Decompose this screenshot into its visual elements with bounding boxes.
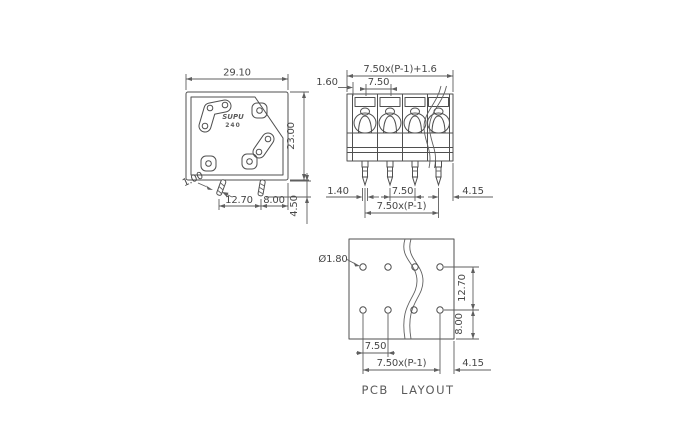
front-view: 7.50x(P-1)+1.6 7.50 1.60 1.40 — [316, 64, 493, 218]
dim-label-pitch-top: 7.50 — [368, 77, 389, 88]
dim-label-pin-width: 1.40 — [327, 186, 348, 197]
dim-label-body-width: 29.10 — [223, 68, 251, 79]
dim-label-pin-span: 7.50x(P-1) — [377, 201, 427, 212]
side-view-body: SUPU 240 — [186, 92, 288, 180]
dim-label-end-margin: 1.60 — [316, 77, 337, 88]
terminal-clamps — [354, 98, 450, 134]
side-view: SUPU 240 29.10 — [181, 68, 311, 225]
dim-label-pcb-pitch: 7.50 — [365, 341, 386, 352]
dim-label-hole-diameter: Ø1.80 — [318, 253, 347, 265]
dim-pcb-last-hole-to-edge: 4.15 — [454, 341, 491, 374]
dim-label-row-spacing: 12.70 — [457, 274, 468, 302]
terminal-block-drawing: SUPU 240 29.10 — [0, 0, 680, 440]
pcb-board-outline — [349, 239, 454, 339]
pcb-holes — [360, 264, 443, 313]
dim-front-end-margin: 1.60 — [316, 77, 353, 96]
dim-side-body-height: 23.00 — [286, 92, 309, 180]
dim-label-pin-thickness: 1.00 — [181, 170, 205, 189]
dim-label-pin-spacing: 12.70 — [225, 195, 253, 206]
dim-label-pitch-bottom: 7.50 — [392, 186, 413, 197]
pcb-layout-view: Ø1.80 12.70 8.00 7.50 7. — [318, 239, 491, 397]
dim-side-pin-spacing: 12.70 8.00 — [219, 183, 288, 210]
dim-label-total-width: 7.50x(P-1)+1.6 — [363, 64, 436, 75]
dim-side-body-width: 29.10 — [186, 68, 288, 91]
brand-logo: SUPU — [222, 113, 244, 121]
dim-label-last-hole-to-edge: 4.15 — [462, 358, 483, 369]
dim-label-pin-length: 4.50 — [289, 195, 300, 216]
dim-label-pin-to-edge: 8.00 — [263, 195, 284, 206]
dim-front-pin-width: 1.40 — [326, 186, 379, 201]
model-number: 240 — [225, 122, 241, 129]
dim-label-row-to-edge: 8.00 — [454, 313, 465, 334]
dim-label-body-height: 23.00 — [286, 122, 297, 150]
dim-pcb-hole-diameter: Ø1.80 — [318, 253, 360, 267]
dim-pcb-row-spacing: 12.70 8.00 — [444, 267, 479, 339]
dim-label-hole-span: 7.50x(P-1) — [377, 358, 427, 369]
pcb-layout-caption: PCB LAYOUT — [361, 383, 454, 397]
dim-front-pitch-bottom: 7.50 — [381, 186, 424, 201]
technical-drawing-page: SUPU 240 29.10 — [0, 0, 680, 440]
dim-label-last-pin-to-edge: 4.15 — [462, 186, 483, 197]
dim-front-pitch-top: 7.50 — [360, 77, 397, 96]
pcb-break-line — [404, 239, 423, 339]
dim-front-total-width: 7.50x(P-1)+1.6 — [347, 64, 453, 92]
